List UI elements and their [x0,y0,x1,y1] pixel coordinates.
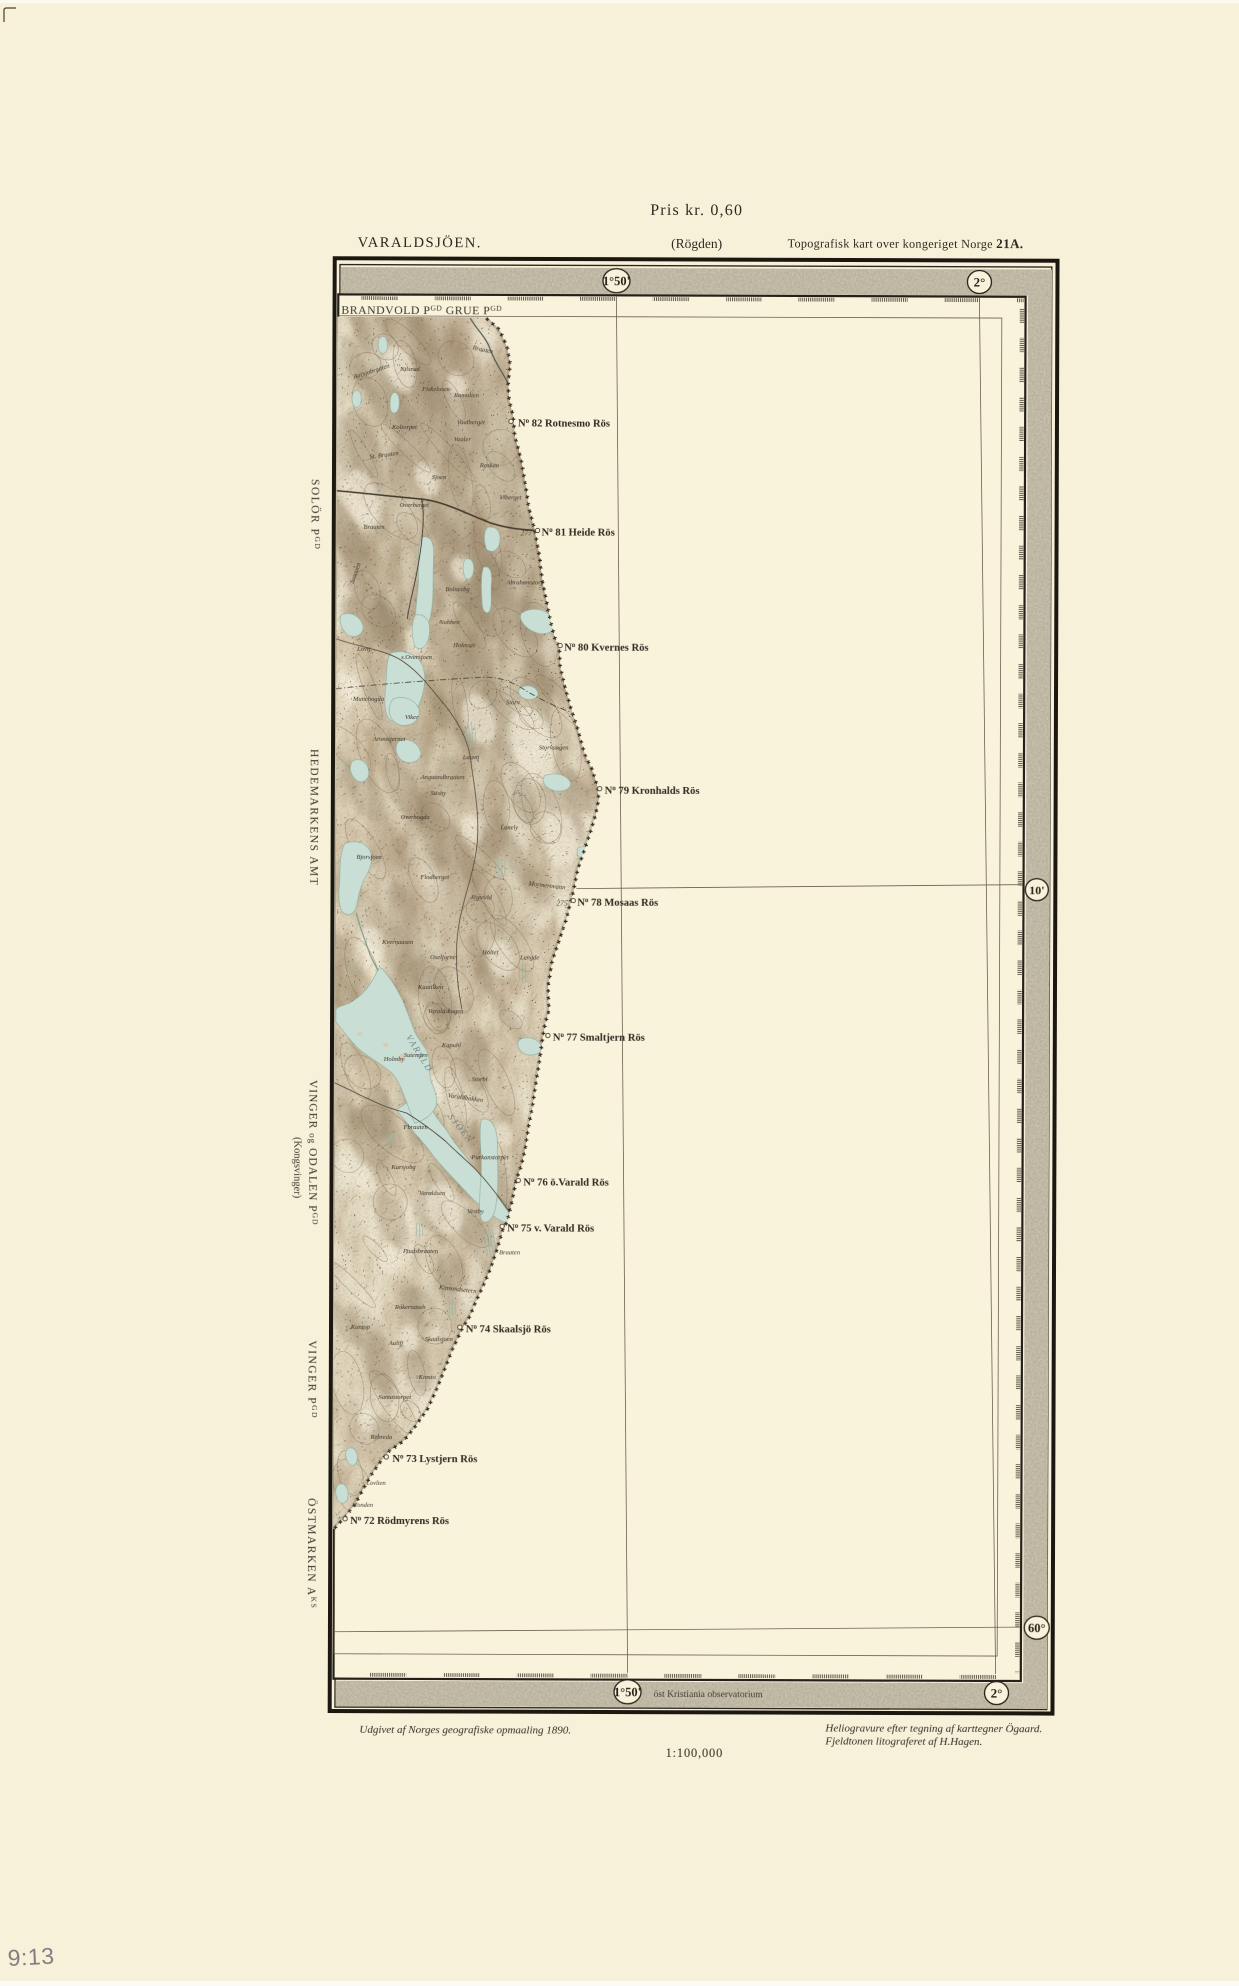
svg-text:Fjeldtonen litograferet af H.H: Fjeldtonen litograferet af H.Hagen. [824,1735,982,1748]
svg-text:Flodberget: Flodberget [419,874,449,881]
svg-text:Overhogda: Overhogda [401,814,430,821]
svg-text:VARALDSJÖEN.: VARALDSJÖEN. [358,234,482,251]
svg-text:No 77 Smaltjern Rös: No 77 Smaltjern Rös [553,1031,645,1044]
svg-text:Bolnesbg: Bolnesbg [445,586,470,593]
svg-text:10': 10' [1029,883,1044,897]
svg-text:Storvangen: Storvangen [539,744,569,751]
svg-text:Pris kr. 0,60: Pris kr. 0,60 [650,202,743,219]
svg-text:Romolien: Romolien [453,392,479,399]
svg-text:ÖSTMARKEN AKS: ÖSTMARKEN AKS [305,1498,319,1609]
svg-text:1°50': 1°50' [603,274,630,288]
svg-text:Stisby: Stisby [431,790,447,797]
svg-text:Kresto: Kresto [418,1374,437,1381]
svg-text:Lengde: Lengde [519,954,539,961]
svg-text:No 82 Rotnesmo Rös: No 82 Rotnesmo Rös [518,417,610,430]
svg-text:No 81 Heide Rös: No 81 Heide Rös [542,526,615,539]
svg-text:No 72 Rödmyrens Rös: No 72 Rödmyrens Rös [350,1514,449,1527]
svg-text:Rokernasen: Rokernasen [394,1304,426,1311]
svg-text:Kaatilken: Kaatilken [417,984,443,991]
svg-text:Viker: Viker [405,714,419,721]
svg-text:Koltorpet: Koltorpet [391,424,417,431]
svg-text:No 80 Kvernes Rös: No 80 Kvernes Rös [564,641,648,654]
svg-text:Braaten: Braaten [499,1249,520,1256]
svg-text:VINGER og ODALEN PGD: VINGER og ODALEN PGD [306,1080,320,1226]
svg-text:No 75 v. Varald Rös: No 75 v. Varald Rös [507,1222,594,1235]
svg-text:No 73 Lystjern Rös: No 73 Lystjern Rös [392,1452,477,1465]
svg-text:277: 277 [521,528,533,537]
svg-text:Lovlien: Lovlien [365,1480,386,1487]
svg-text:Varaldsen: Varaldsen [419,1190,445,1197]
svg-text:Lonely: Lonely [500,824,519,831]
svg-text:(Rögden): (Rögden) [671,236,722,251]
svg-text:Abrahamstorp: Abrahamstorp [505,579,544,586]
svg-text:HEDEMARKENS AMT: HEDEMARKENS AMT [307,749,319,886]
svg-text:Tonden: Tonden [354,1502,373,1509]
svg-text:1:100,000: 1:100,000 [666,1746,724,1760]
svg-text:Viberget: Viberget [500,494,522,501]
svg-text:Purkanstorpet: Purkanstorpet [470,1154,508,1161]
svg-text:Vaalberget: Vaalberget [457,419,485,426]
svg-text:Storhl: Storhl [472,1076,488,1083]
svg-text:Braaten: Braaten [364,524,385,531]
svg-text:Lauvtj: Lauvtj [462,754,480,761]
svg-text:Sjoen: Sjoen [432,474,446,481]
svg-text:Nabben: Nabben [438,619,459,626]
svg-text:Overberget: Overberget [400,502,430,509]
svg-text:Holtet: Holtet [481,949,498,956]
svg-text:Oseljornet: Oseljornet [430,954,458,961]
svg-text:öst Kristiania observatorium: öst Kristiania observatorium [654,1689,764,1700]
svg-text:Munchogda: Munchogda [352,696,384,703]
svg-text:Raskau: Raskau [479,462,500,469]
svg-text:Rebreda: Rebreda [369,1434,392,1441]
svg-text:Paulsbraaten: Paulsbraaten [402,1248,438,1255]
svg-text:60°: 60° [1028,1621,1046,1635]
svg-text:Storv: Storv [506,699,520,706]
svg-text:Aronstjernet: Aronstjernet [372,736,405,743]
svg-text:Nilsrud: Nilsrud [399,366,420,373]
svg-text:Topografisk kart over kongerig: Topografisk kart over kongeriget Norge 2… [788,235,1024,251]
svg-text:275: 275 [556,899,568,908]
svg-text:Fiskelosen: Fiskelosen [421,386,450,393]
svg-text:No 74 Skaalsjö Rös: No 74 Skaalsjö Rös [466,1323,551,1336]
svg-text:No 79 Kronhalds Rös: No 79 Kronhalds Rös [605,784,700,797]
svg-text:(Kongsvinger): (Kongsvinger) [291,1137,302,1199]
svg-text:Bjorsjoen: Bjorsjoen [356,854,381,861]
svg-text:Anguandbraaten: Anguandbraaten [420,774,465,781]
svg-text:No 76 ö.Varald Rös: No 76 ö.Varald Rös [523,1176,609,1189]
svg-text:BRANDVOLD PGD GRUE PGD: BRANDVOLD PGD GRUE PGD [341,303,502,318]
svg-text:Aulifj: Aulifj [388,1340,404,1347]
svg-text:Holmset: Holmset [452,642,475,649]
svg-text:1°50': 1°50' [614,1685,641,1699]
svg-text:Samastorpet: Samastorpet [379,1394,412,1401]
svg-text:Vaaler: Vaaler [454,436,471,443]
svg-text:Kuntop: Kuntop [350,1324,371,1331]
svg-text:Karsjobg: Karsjobg [390,1164,416,1171]
svg-text:s.Oversjoen: s.Oversjoen [401,654,432,661]
svg-text:2°: 2° [974,274,986,289]
svg-text:Udgivet af Norges geografiske: Udgivet af Norges geografiske opmaaling … [359,1724,571,1737]
svg-text:Heliogravure efter tegning af: Heliogravure efter tegning af karttegner… [824,1722,1042,1735]
svg-text:Holmby: Holmby [383,1056,405,1063]
svg-text:9:13: 9:13 [7,1943,55,1971]
svg-text:Fbraaten: Fbraaten [402,1124,427,1131]
svg-text:Jegtevld: Jegtevld [470,894,492,901]
svg-text:Skaalsjoen: Skaalsjoen [425,1336,453,1343]
svg-text:Varaldskogen: Varaldskogen [428,1008,463,1015]
svg-text:2°: 2° [991,1686,1003,1701]
svg-text:Lovtj.: Lovtj. [356,646,372,653]
svg-text:Kapuhl: Kapuhl [441,1042,461,1049]
svg-text:Vestby: Vestby [467,1208,484,1215]
svg-text:No 78 Mosaas Rös: No 78 Mosaas Rös [577,896,658,909]
svg-text:Kvernaasen: Kvernaasen [381,939,413,946]
